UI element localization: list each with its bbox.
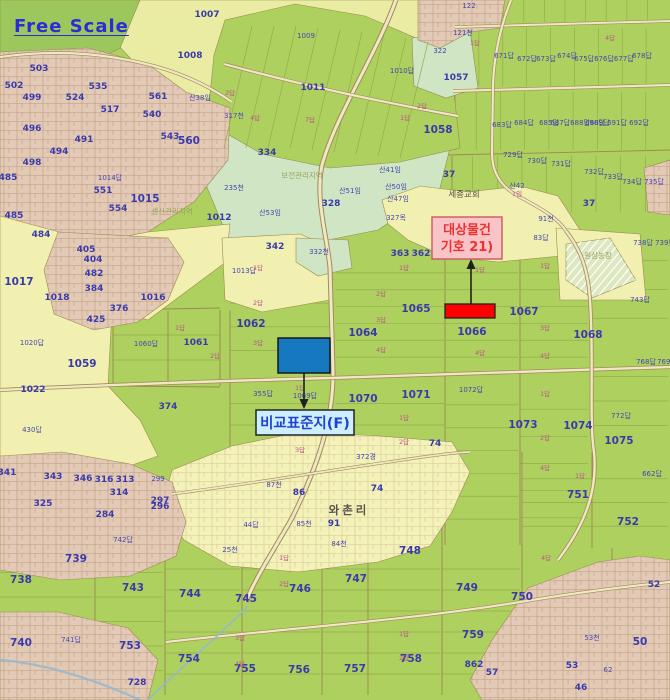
parcel-label: 743답 — [630, 295, 650, 304]
parcel-label: 50 — [633, 636, 648, 648]
parcel-label: 1018 — [44, 293, 69, 303]
parcel-label: 4답 — [475, 349, 485, 357]
parcel-label: 739답 — [655, 238, 670, 247]
parcel-label: 1066 — [457, 326, 486, 338]
parcel-label: 1067 — [509, 306, 538, 318]
parcel-label: 328 — [322, 199, 341, 209]
parcel-label: 1064 — [348, 327, 377, 339]
parcel-label: 751 — [567, 489, 589, 501]
region-texture-village-rightsliver — [644, 160, 670, 215]
parcel-label: 87천 — [266, 480, 281, 489]
parcel-label: 1075 — [604, 435, 633, 447]
parcel-label: 671답 — [494, 51, 514, 60]
scale-indicator: Free Scale — [14, 16, 129, 37]
parcel-label: 362 — [412, 249, 431, 259]
parcel-label: 491 — [75, 135, 94, 145]
parcel-label: 2답 — [210, 352, 220, 360]
parcel-label: 2답 — [253, 299, 263, 307]
parcel-label: 산47임 — [387, 194, 409, 203]
parcel-label: 1답 — [575, 472, 585, 480]
parcel-label: 372경 — [356, 452, 376, 461]
parcel-label: 1015 — [130, 193, 159, 205]
parcel-label: 768답 — [636, 357, 656, 366]
parcel-label: 551 — [94, 186, 113, 196]
parcel-label: 2답 — [399, 438, 409, 446]
parcel-label: 1017 — [4, 276, 33, 288]
parcel-label: 1008 — [177, 51, 202, 61]
parcel-label: 752 — [617, 516, 639, 528]
parcel-label: 756 — [288, 664, 310, 676]
parcel-label: 355답 — [253, 389, 273, 398]
parcel-label: 772답 — [611, 411, 631, 420]
parcel-label: 3답 — [540, 324, 550, 332]
parcel-label: 684답 — [514, 118, 534, 127]
parcel-label: 4답 — [605, 34, 615, 42]
parcel-label: 1022 — [20, 385, 45, 395]
parcel-label: 327목 — [386, 214, 406, 222]
parcel-label: 85천 — [296, 519, 311, 528]
parcel-label: 739 — [65, 553, 87, 565]
parcel-label: 산50임 — [385, 182, 407, 191]
parcel-label: 738답 — [633, 238, 653, 247]
parcel-label: 3답 — [235, 634, 245, 642]
parcel-label: 1020답 — [20, 338, 45, 347]
parcel-label: 1059 — [67, 358, 96, 370]
parcel-label: 376 — [110, 304, 129, 314]
parcel-label: 673답 — [536, 54, 556, 63]
parcel-label: 314 — [110, 488, 129, 498]
comparison-label: 비교표준지(F) — [260, 415, 350, 432]
parcel-label: 341 — [0, 468, 16, 478]
parcel-label: 122 — [462, 2, 475, 10]
parcel-label: 374 — [159, 402, 178, 412]
parcel-label: 332천 — [309, 247, 329, 256]
parcel-label: 산38임 — [189, 93, 211, 102]
parcel-label: 334 — [258, 148, 277, 158]
parcel-label: 1062 — [236, 318, 265, 330]
parcel-label: 1060답 — [134, 339, 159, 348]
parcel-label: 1답 — [399, 414, 409, 422]
parcel-label: 1010답 — [390, 66, 415, 75]
parcel-label: 754 — [178, 653, 200, 665]
parcel-label: 746 — [289, 583, 311, 595]
parcel-label: 83답 — [533, 233, 549, 242]
parcel-label: 37 — [583, 199, 596, 209]
parcel-label: 53 — [566, 661, 579, 671]
parcel-label: 3답 — [253, 339, 263, 347]
parcel-label: 430답 — [22, 425, 42, 434]
parcel-label: 740 — [10, 637, 32, 649]
parcel-label: 46 — [575, 683, 588, 693]
parcel-label: 517 — [101, 105, 120, 115]
parcel-label: 74 — [371, 484, 384, 494]
parcel-label: 1071 — [401, 389, 430, 401]
parcel-label: 4답 — [250, 114, 260, 122]
cadastral-map: 100710081009101110581057122121천1010답322산… — [0, 0, 670, 700]
parcel-label: 4답 — [540, 464, 550, 472]
parcel-label: 485 — [5, 211, 24, 221]
parcel-label: 543 — [161, 132, 180, 142]
parcel-label: 1009 — [297, 32, 315, 40]
parcel-label: 2답 — [225, 89, 235, 97]
parcel-label: 84천 — [331, 539, 346, 548]
parcel-label: 1007 — [194, 10, 219, 20]
parcel-label: 1068 — [573, 329, 602, 341]
parcel-label: 53천 — [584, 633, 599, 642]
parcel-label: 554 — [109, 204, 128, 214]
parcel-label: 2답 — [417, 102, 427, 110]
parcel-label: 404 — [84, 255, 103, 265]
parcel-label: 25천 — [222, 545, 237, 554]
parcel-label: 4답 — [235, 660, 245, 668]
parcel-label: 322 — [433, 47, 446, 55]
parcel-label: 730답 — [527, 156, 547, 165]
parcel-label: 91천 — [538, 214, 553, 223]
parcel-label: 759 — [462, 629, 484, 641]
parcel-label: 346 — [74, 474, 93, 484]
parcel-label: 284 — [96, 510, 115, 520]
parcel-label: 1069답 — [293, 391, 318, 400]
parcel-label: 세종교회 — [448, 190, 479, 200]
parcel-label: 738 — [10, 574, 32, 586]
parcel-label: 1012 — [206, 213, 231, 223]
parcel-label: 561 — [149, 92, 168, 102]
parcel-label: 729답 — [503, 150, 523, 159]
parcel-label: 1답 — [279, 554, 289, 562]
parcel-label: 502 — [5, 81, 24, 91]
parcel-label: 672답 — [517, 54, 537, 63]
parcel-label: 485 — [0, 173, 17, 183]
comparison-parcel-rect — [278, 338, 330, 373]
parcel-label: 3답 — [295, 446, 305, 454]
parcel-label: 503 — [30, 64, 49, 74]
parcel-label: 1임 — [512, 190, 522, 198]
parcel-label: 121천 — [453, 28, 473, 37]
parcel-label: 산51임 — [339, 186, 361, 195]
parcel-label: 732답 — [584, 167, 604, 176]
parcel-label: 57 — [486, 668, 499, 678]
parcel-label: 662답 — [642, 469, 662, 478]
parcel-label: 37 — [443, 170, 456, 180]
parcel-label: 1058 — [423, 124, 452, 136]
parcel-label: 91 — [328, 519, 341, 529]
parcel-label: 산53임 — [259, 208, 281, 217]
parcel-label: 524 — [66, 93, 85, 103]
parcel-label: 2답 — [540, 434, 550, 442]
parcel-label: 540 — [143, 110, 162, 120]
parcel-label: 496 — [23, 124, 42, 134]
parcel-label: 1답 — [399, 264, 409, 272]
parcel-label: 1답 — [400, 114, 410, 122]
parcel-label: 750 — [511, 591, 533, 603]
parcel-label: 1답 — [475, 266, 485, 274]
parcel-label: 1073 — [508, 419, 537, 431]
parcel-label: 733답 — [603, 172, 623, 181]
parcel-label: 757 — [344, 663, 366, 675]
parcel-label: 86 — [293, 488, 306, 498]
parcel-label: 747 — [345, 573, 367, 585]
parcel-label: 313 — [116, 475, 135, 485]
parcel-label: 482 — [85, 269, 104, 279]
parcel-label: 1014답 — [98, 173, 123, 182]
parcel-label: 와촌리 — [329, 503, 370, 517]
parcel-label: 405 — [77, 245, 96, 255]
parcel-label: 749 — [456, 582, 478, 594]
parcel-label: 4답 — [541, 554, 551, 562]
parcel-label: 862 — [465, 660, 484, 670]
parcel-label: 535 — [89, 82, 108, 92]
parcel-label: 산42 — [509, 181, 524, 190]
parcel-label: 1070 — [348, 393, 377, 405]
parcel-label: 744 — [179, 588, 201, 600]
parcel-label: 384 — [85, 284, 104, 294]
parcel-label: 1답 — [253, 264, 263, 272]
parcel-label: 1016 — [140, 293, 165, 303]
parcel-label: 7답 — [305, 116, 315, 124]
parcel-label: 316 — [95, 475, 114, 485]
parcel-label: 363 — [391, 249, 410, 259]
target-property-rect — [445, 304, 495, 318]
parcel-label: 731답 — [551, 159, 571, 168]
parcel-label: 675답676답677답 — [574, 54, 634, 63]
parcel-label: 74 — [429, 439, 442, 449]
parcel-label: 690답 691답 692답 — [585, 118, 649, 127]
map-canvas[interactable]: 100710081009101110581057122121천1010답322산… — [0, 0, 670, 700]
parcel-label: 296 — [151, 502, 170, 512]
parcel-label: 484 — [32, 230, 51, 240]
parcel-label: 생산관리지역 — [151, 206, 192, 216]
parcel-label: 원삼농장 — [584, 250, 612, 260]
parcel-label: 745 — [235, 593, 257, 605]
parcel-label: 753 — [119, 640, 141, 652]
parcel-label: 678답 — [632, 51, 652, 60]
parcel-label: 748 — [399, 545, 421, 557]
target-property-label: 기호 21) — [441, 240, 493, 255]
parcel-label: 3답 — [376, 316, 386, 324]
parcel-label: 52 — [648, 580, 661, 590]
parcel-label: 4답 — [540, 352, 550, 360]
parcel-label: 769답 — [657, 357, 670, 366]
parcel-label: 343 — [44, 472, 63, 482]
parcel-label: 44답 — [243, 520, 259, 529]
parcel-label: 494 — [50, 147, 69, 157]
parcel-label: 2답 — [279, 580, 289, 588]
parcel-label: 1답 — [175, 324, 185, 332]
parcel-label: 1011 — [300, 83, 325, 93]
parcel-label: 499 — [23, 93, 42, 103]
parcel-label: 235천 — [224, 183, 244, 192]
parcel-label: 1061 — [183, 338, 208, 348]
parcel-label: 743 — [122, 582, 144, 594]
parcel-label: 683답 — [492, 120, 512, 129]
parcel-label: 2답 — [399, 654, 409, 662]
parcel-label: 741답 — [61, 635, 81, 644]
parcel-label: 보전관리지역 — [281, 170, 322, 180]
parcel-label: 742답 — [113, 535, 133, 544]
target-property-label: 대상물건 — [443, 222, 491, 238]
parcel-label: 560 — [178, 135, 200, 147]
parcel-label: 325 — [34, 499, 53, 509]
parcel-label: 1057 — [443, 73, 468, 83]
parcel-label: 1답 — [470, 39, 480, 47]
parcel-label: 2답 — [376, 290, 386, 298]
parcel-label: 728 — [128, 678, 147, 688]
parcel-label: 4답 — [376, 346, 386, 354]
parcel-label: 산41임 — [379, 165, 401, 174]
parcel-label: 1답 — [540, 390, 550, 398]
parcel-label: 299 — [151, 475, 164, 483]
parcel-label: 1답 — [540, 262, 550, 270]
parcel-label: 1074 — [563, 420, 592, 432]
parcel-label: 1답 — [399, 630, 409, 638]
parcel-label: 317천 — [224, 111, 244, 120]
parcel-label: 1065 — [401, 303, 430, 315]
parcel-label: 342 — [266, 242, 285, 252]
parcel-label: 734답 735답 — [622, 177, 664, 186]
parcel-label: 1072답 — [459, 385, 484, 394]
parcel-label: 62 — [604, 666, 613, 674]
parcel-label: 425 — [87, 315, 106, 325]
parcel-label: 498 — [23, 158, 42, 168]
